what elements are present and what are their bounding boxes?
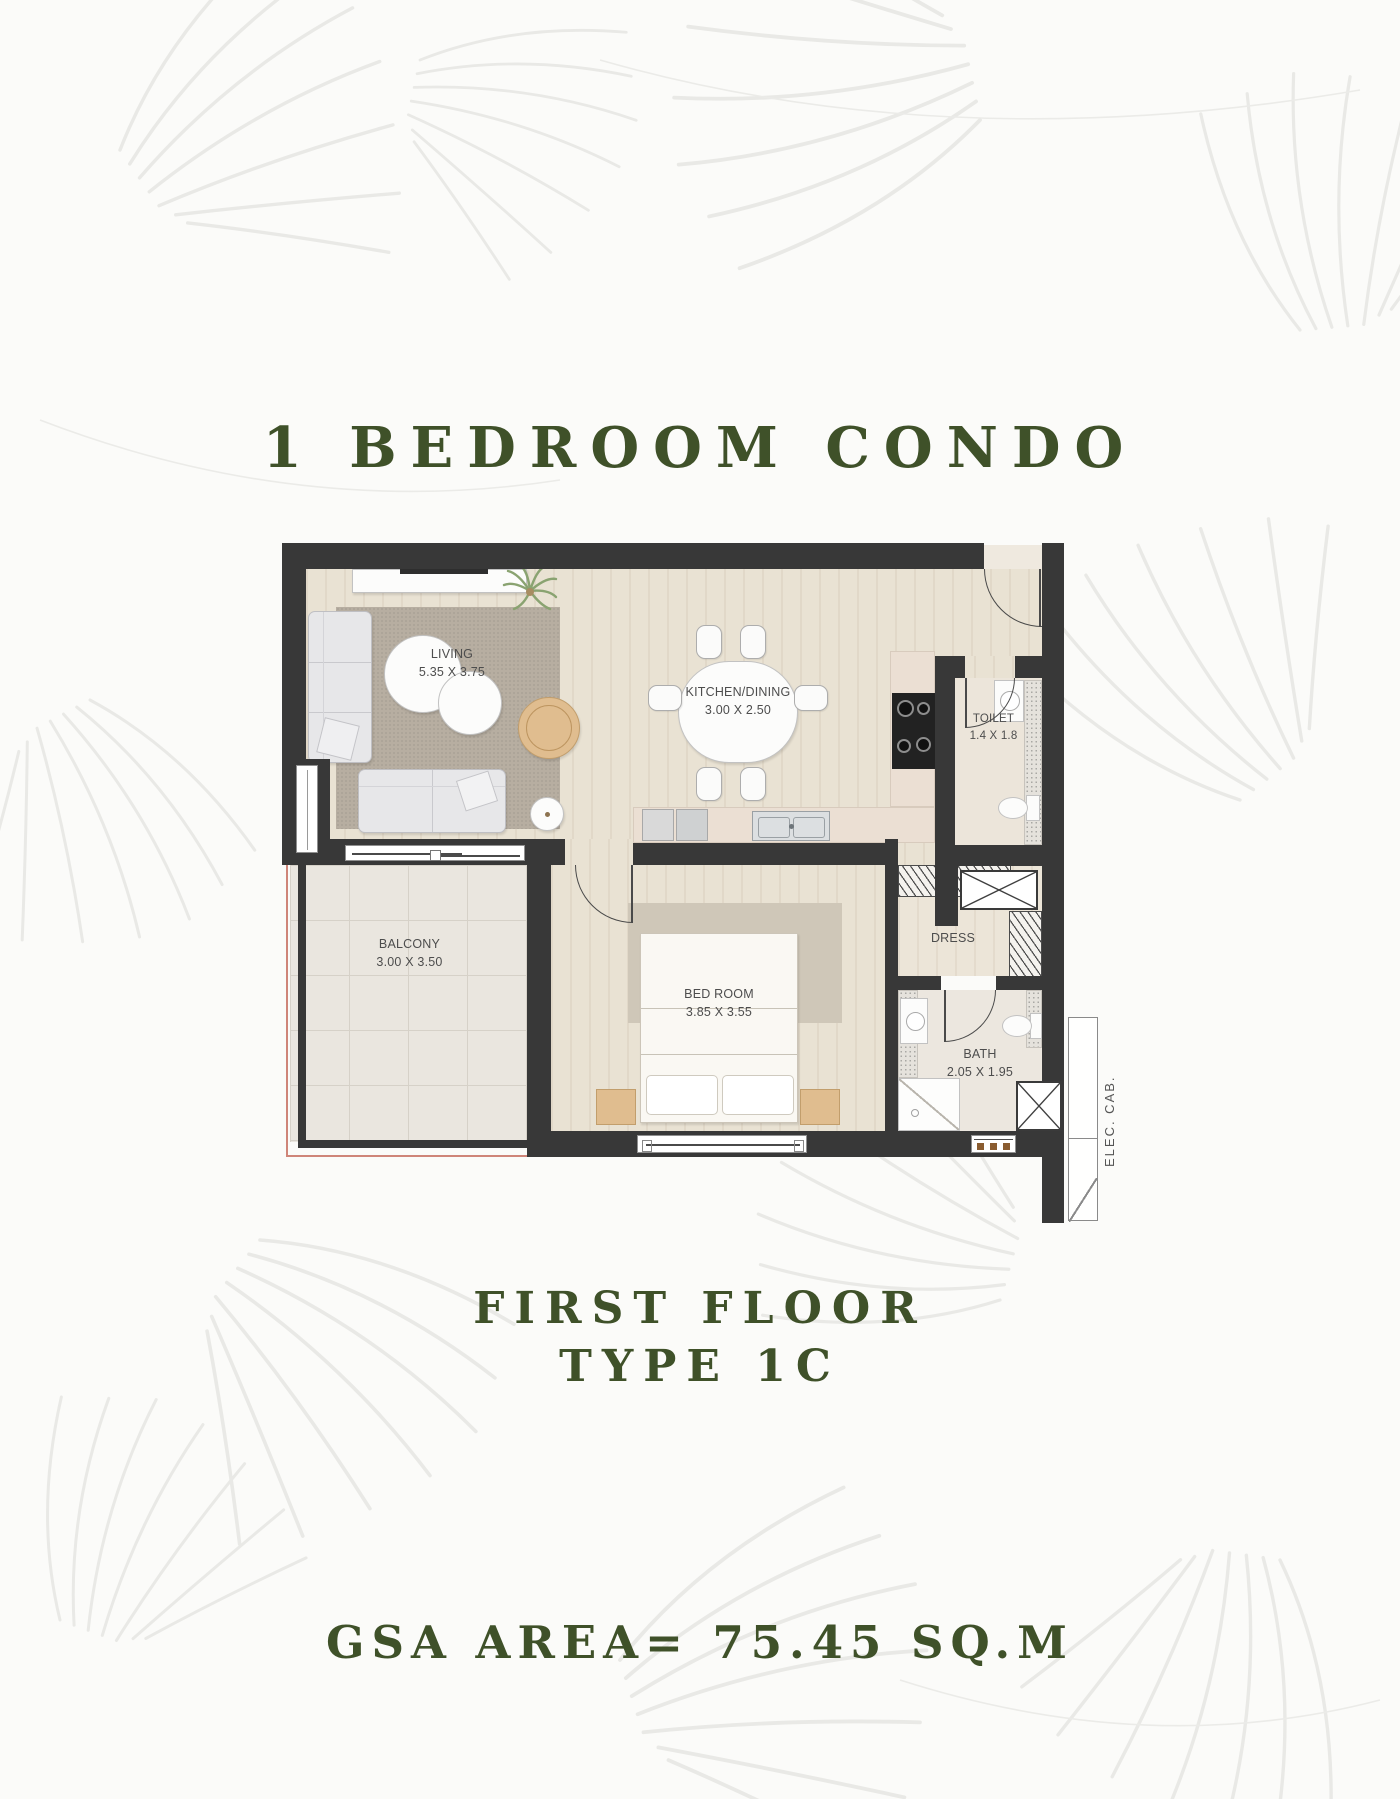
toilet-label: TOILET 1.4 X 1.8 <box>946 711 1041 744</box>
page-title: 1 BEDROOM CONDO <box>0 415 1400 481</box>
toilet-tank <box>1026 795 1040 821</box>
bath-dims: 2.05 X 1.95 <box>930 1063 1030 1081</box>
freezer <box>676 809 708 841</box>
balcony-name: BALCONY <box>342 935 477 953</box>
plant-icon <box>500 563 560 619</box>
nightstand-right <box>800 1089 840 1125</box>
rattan-chair <box>518 697 580 759</box>
bedroom-name: BED ROOM <box>654 985 784 1003</box>
wall-bedroom-bath <box>885 918 898 1131</box>
living-dims: 5.35 X 3.75 <box>382 663 522 681</box>
wall-toilet-top-b <box>1015 656 1042 678</box>
dining-chair <box>794 685 828 711</box>
dining-chair <box>696 767 722 801</box>
dining-chair <box>740 625 766 659</box>
kitchen-name: KITCHEN/DINING <box>678 683 798 701</box>
bath-shaft <box>1016 1081 1062 1131</box>
kitchen-sink <box>752 811 830 841</box>
toilet-dims: 1.4 X 1.8 <box>946 728 1041 745</box>
dining-chair <box>696 625 722 659</box>
wall-toilet-top-a <box>955 656 965 678</box>
balcony-outline-bottom <box>286 1155 530 1157</box>
floor-type-label: FIRST FLOOR TYPE 1C <box>0 1280 1400 1396</box>
bath-label: BATH 2.05 X 1.95 <box>930 1045 1030 1081</box>
electrical-cabinet <box>1068 1017 1098 1221</box>
type-line: TYPE 1C <box>0 1338 1400 1396</box>
wall-below-toilet <box>935 866 958 926</box>
balcony-label: BALCONY 3.00 X 3.50 <box>342 935 477 971</box>
floor-plan: LIVING 5.35 X 3.75 KITCHEN/DINING 3.00 X… <box>282 543 1142 1243</box>
wall-balcony-bedroom <box>527 839 551 1148</box>
bedroom-door-leaf <box>631 865 633 923</box>
wall-dress-bath-b <box>996 976 1042 990</box>
wall-corridor-dress <box>885 839 898 918</box>
bedroom-window <box>637 1135 807 1153</box>
bath-vanity <box>900 998 928 1044</box>
balcony-rail-left <box>298 865 306 1148</box>
balcony-sliding-door <box>345 845 525 861</box>
toilet-bowl <box>998 797 1028 819</box>
wall-bedroom-top-b <box>633 843 885 865</box>
duct-shaft <box>960 870 1038 910</box>
bath-vent-window <box>971 1135 1016 1153</box>
bedroom-dims: 3.85 X 3.55 <box>654 1003 784 1021</box>
bath-door-leaf <box>944 990 946 1042</box>
wall-top <box>282 543 984 569</box>
shower <box>898 1078 960 1131</box>
entry-door-leaf <box>1039 569 1041 627</box>
bedroom-label: BED ROOM 3.85 X 3.55 <box>654 985 784 1021</box>
balcony-rail-bottom <box>298 1140 527 1148</box>
bed-pillow <box>646 1075 718 1115</box>
balcony-outline-left <box>286 865 288 1157</box>
dining-chair <box>648 685 682 711</box>
wall-dress-bath-a <box>898 976 941 990</box>
balcony-floor <box>290 865 527 1142</box>
living-side-window <box>296 765 318 853</box>
nightstand-left <box>596 1089 636 1125</box>
wall-bedroom-top-a <box>551 839 565 865</box>
dining-chair <box>740 767 766 801</box>
living-name: LIVING <box>382 645 522 663</box>
entry-threshold <box>984 545 1042 569</box>
gsa-area-label: GSA AREA= 75.45 SQ.M <box>0 1616 1400 1669</box>
kitchen-label: KITCHEN/DINING 3.00 X 2.50 <box>678 683 798 719</box>
bed-pillow <box>722 1075 794 1115</box>
elec-cab-label: ELEC. CAB. <box>1102 1017 1117 1167</box>
wardrobe-right <box>1009 911 1042 979</box>
kitchen-dims: 3.00 X 2.50 <box>678 701 798 719</box>
floor-line: FIRST FLOOR <box>0 1280 1400 1338</box>
brochure-page: { "title": "1 BEDROOM CONDO", "floor_lab… <box>0 0 1400 1799</box>
dress-label: DRESS <box>910 929 996 947</box>
stove <box>892 693 935 769</box>
bath-name: BATH <box>930 1045 1030 1063</box>
wall-toilet-bottom <box>935 845 1042 866</box>
bath-toilet-bowl <box>1002 1015 1032 1037</box>
living-label: LIVING 5.35 X 3.75 <box>382 645 522 681</box>
toilet-name: TOILET <box>946 711 1041 728</box>
balcony-dims: 3.00 X 3.50 <box>342 953 477 971</box>
wall-toilet-left <box>935 656 955 853</box>
floor-lamp <box>530 797 564 831</box>
fridge <box>642 809 674 841</box>
dress-name: DRESS <box>910 929 996 947</box>
